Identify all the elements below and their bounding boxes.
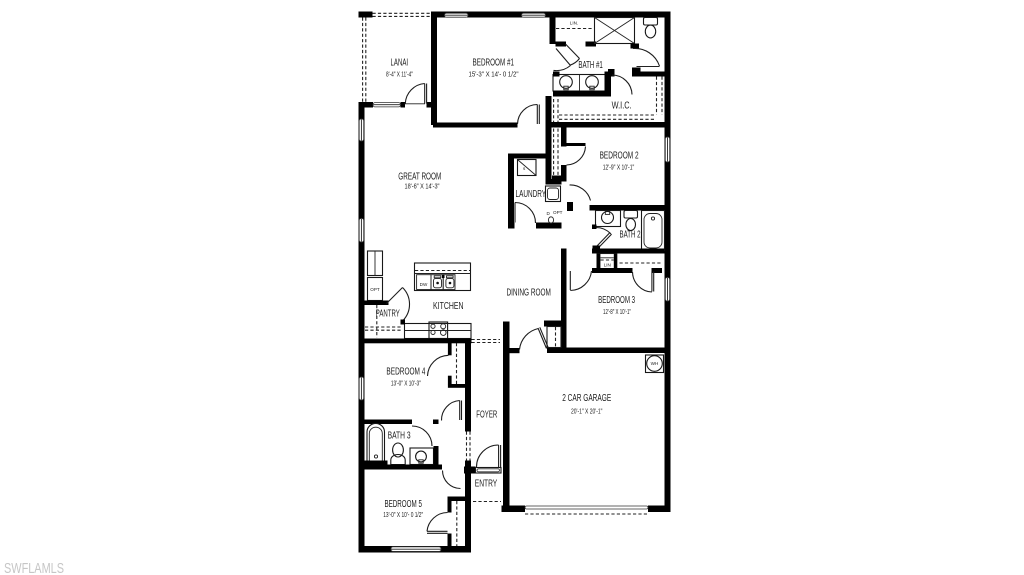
svg-text:18'-6" X 14'-3": 18'-6" X 14'-3" xyxy=(405,182,440,191)
svg-text:BEDROOM 5: BEDROOM 5 xyxy=(384,499,422,510)
svg-text:LIN.: LIN. xyxy=(570,21,578,26)
svg-text:BEDROOM 2: BEDROOM 2 xyxy=(600,151,639,162)
svg-text:2 CAR GARAGE: 2 CAR GARAGE xyxy=(562,393,611,404)
svg-text:8'-4" X 11'-4": 8'-4" X 11'-4" xyxy=(386,70,413,79)
svg-text:ENTRY: ENTRY xyxy=(475,479,498,490)
svg-text:20'-1" X 20'-1": 20'-1" X 20'-1" xyxy=(571,406,603,415)
svg-text:BATH 2: BATH 2 xyxy=(620,229,641,240)
svg-text:PANTRY: PANTRY xyxy=(376,309,400,320)
svg-text:12'-8" X 10'-1": 12'-8" X 10'-1" xyxy=(603,307,631,316)
svg-text:LAUNDRY: LAUNDRY xyxy=(516,189,547,200)
svg-text:OPT: OPT xyxy=(370,287,380,292)
svg-text:SWFLAMLS: SWFLAMLS xyxy=(4,560,64,575)
svg-text:13'-0" X 10'- 0 1/2": 13'-0" X 10'- 0 1/2" xyxy=(383,510,423,519)
svg-text:BEDROOM #1: BEDROOM #1 xyxy=(473,58,515,69)
svg-text:BATH 3: BATH 3 xyxy=(388,431,411,442)
svg-text:WH: WH xyxy=(651,361,659,366)
svg-text:DW: DW xyxy=(420,282,428,287)
svg-text:12'-9" X 10'-1": 12'-9" X 10'-1" xyxy=(603,163,635,172)
svg-text:15'-3" X 14'- 0 1/2": 15'-3" X 14'- 0 1/2" xyxy=(469,70,519,79)
svg-text:BATH #1: BATH #1 xyxy=(578,60,603,71)
svg-text:KITCHEN: KITCHEN xyxy=(433,301,464,312)
svg-text:W.I.C.: W.I.C. xyxy=(612,100,632,111)
svg-text:OPT: OPT xyxy=(553,210,563,215)
svg-text:BEDROOM 4: BEDROOM 4 xyxy=(386,367,425,378)
svg-text:FOYER: FOYER xyxy=(476,410,497,421)
svg-text:LIN: LIN xyxy=(604,263,611,268)
svg-text:LANAI: LANAI xyxy=(391,58,409,69)
svg-text:BEDROOM 3: BEDROOM 3 xyxy=(598,295,635,306)
svg-text:DINING ROOM: DINING ROOM xyxy=(506,288,551,299)
svg-text:13'-0" X 10'-3": 13'-0" X 10'-3" xyxy=(391,379,421,388)
